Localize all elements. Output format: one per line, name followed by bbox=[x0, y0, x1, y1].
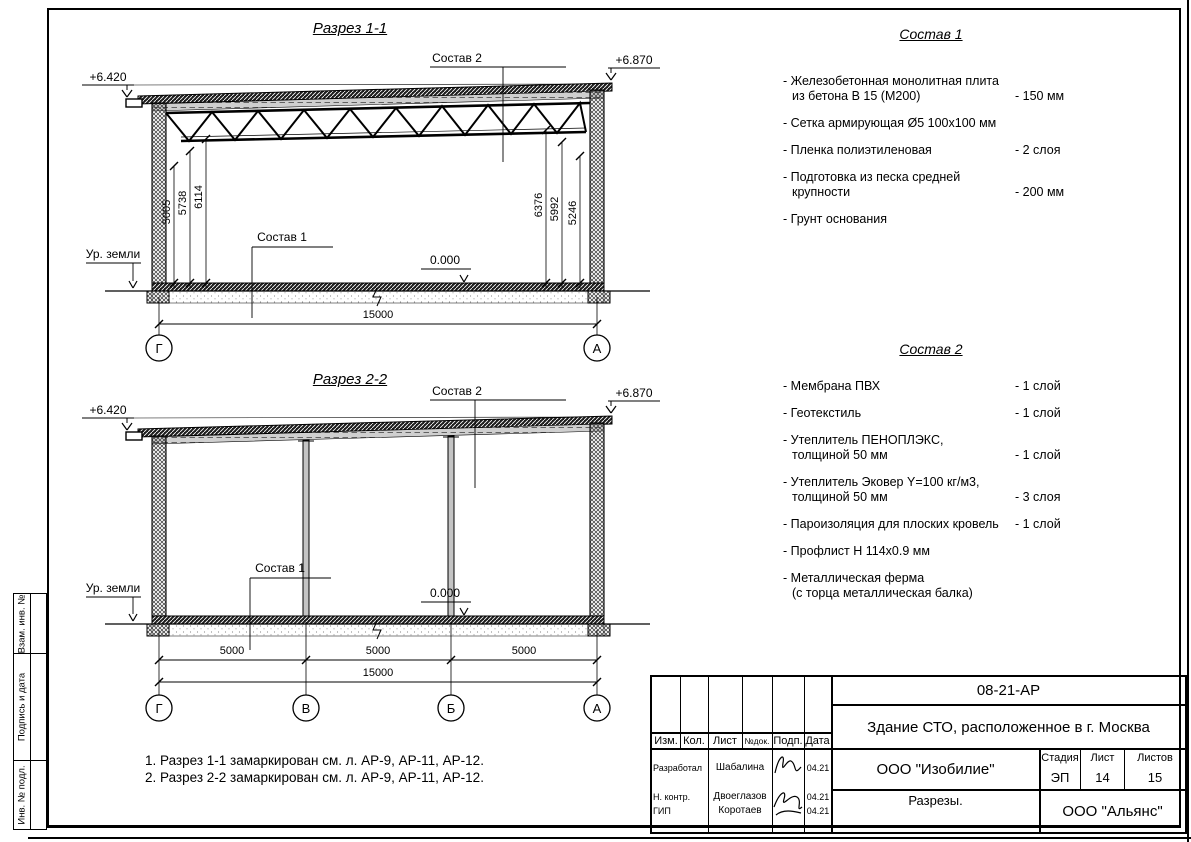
svg-text:Ур. земли: Ур. земли bbox=[86, 247, 140, 261]
dim-label: 5992 bbox=[549, 197, 561, 221]
note-line: 1. Разрез 1-1 замаркирован см. л. АР-9, … bbox=[145, 752, 484, 769]
footing-right bbox=[588, 291, 610, 303]
axis-bubbles: Г А bbox=[146, 335, 610, 361]
wall-left bbox=[152, 436, 166, 616]
list-item: - Металлическая ферма (с торца металличе… bbox=[783, 571, 1079, 601]
svg-text:+6.870: +6.870 bbox=[615, 386, 652, 400]
svg-text:Состав 1: Состав 1 bbox=[257, 230, 307, 244]
elevation-mark-right: +6.870 bbox=[606, 386, 660, 413]
sostav1-header: Состав 1 bbox=[783, 26, 1079, 50]
list-item: - Мембрана ПВХ - 1 слой bbox=[783, 379, 1079, 394]
section-1-1-drawing: 5005 5738 6114 6376 5992 5246 +6.420 +6.… bbox=[82, 51, 660, 361]
rev-col-kol: Кол. bbox=[680, 733, 708, 748]
signature-strokes bbox=[771, 751, 805, 823]
sheets-label: Листов bbox=[1125, 750, 1185, 765]
rev-col-data: Дата bbox=[804, 733, 831, 748]
ground-level-label: Ур. земли bbox=[86, 581, 141, 621]
callout-sostav1: Состав 1 bbox=[250, 561, 331, 650]
dim-label: 6376 bbox=[533, 193, 545, 217]
dim-label: 5246 bbox=[567, 201, 579, 225]
axis-letter: Г bbox=[155, 701, 162, 716]
rev-col-podp: Подп. bbox=[772, 733, 804, 748]
signatory-name: Двоеглазов bbox=[709, 790, 771, 803]
dims-left bbox=[170, 135, 210, 288]
dim-label: 5738 bbox=[177, 191, 189, 215]
sheet-label: Лист bbox=[1081, 750, 1124, 765]
svg-text:+6.420: +6.420 bbox=[89, 70, 126, 84]
dim-label: 5000 bbox=[512, 645, 536, 657]
sostav1-list: - Железобетонная монолитная плита из бет… bbox=[783, 74, 1079, 239]
project-title: Здание СТО, расположенное в г. Москва bbox=[832, 706, 1185, 748]
sostav2-title: Состав 2 bbox=[783, 341, 1079, 357]
zero-level-mark: 0.000 bbox=[421, 253, 471, 282]
ground-level-label: Ур. земли bbox=[86, 247, 141, 288]
list-item: - Утеплитель Эковер Y=100 кг/м3, толщино… bbox=[783, 475, 1079, 505]
section-2-2-drawing: +6.420 +6.870 Ур. земли Состав 2 bbox=[82, 384, 660, 721]
svg-text:15000: 15000 bbox=[363, 309, 394, 321]
sostav2-header: Состав 2 bbox=[783, 341, 1079, 365]
dim-label: 5000 bbox=[366, 645, 390, 657]
dim-label: 5005 bbox=[161, 200, 173, 224]
wall-right bbox=[590, 423, 604, 616]
parapet-flashing bbox=[126, 432, 142, 440]
axis-letter: Г bbox=[155, 341, 162, 356]
svg-text:0.000: 0.000 bbox=[430, 586, 460, 600]
rev-col-izm: Изм. bbox=[652, 733, 680, 748]
axis-letter: Б bbox=[447, 701, 456, 716]
elevation-mark-left: +6.420 bbox=[82, 403, 134, 430]
sostav1-title: Состав 1 bbox=[783, 26, 1079, 42]
strip-cell: Инв. № подл. bbox=[13, 760, 47, 830]
signatory-role: ГИП bbox=[653, 804, 707, 817]
footing-right bbox=[588, 624, 610, 636]
list-item: - Грунт основания bbox=[783, 212, 1079, 227]
floor-slab bbox=[152, 283, 604, 291]
strip-cell: Взам. инв. № bbox=[13, 593, 47, 653]
drawing-sheet: Разрез 1-1 Разрез 2-2 bbox=[0, 0, 1191, 842]
sheet-value: 14 bbox=[1081, 766, 1124, 789]
callout-sostav1: Состав 1 bbox=[252, 230, 333, 318]
designer-org: ООО "Изобилие" bbox=[832, 750, 1039, 789]
list-item: - Сетка армирующая Ø5 100x100 мм bbox=[783, 116, 1079, 131]
list-item: - Профлист Н 114x0.9 мм bbox=[783, 544, 1079, 559]
elevation-mark-left: +6.420 bbox=[82, 70, 134, 97]
wall-left bbox=[152, 103, 166, 283]
svg-text:Состав 1: Состав 1 bbox=[255, 561, 305, 575]
list-item: - Пароизоляция для плоских кровель - 1 с… bbox=[783, 517, 1079, 532]
axis-bubbles: Г В Б А bbox=[146, 695, 610, 721]
stage-label: Стадия bbox=[1040, 750, 1080, 765]
client-org: ООО "Альянс" bbox=[1040, 791, 1185, 832]
signatory-role: Разработал bbox=[653, 760, 707, 775]
signatory-date: 04.21 bbox=[805, 804, 831, 817]
dim-label: 15000 bbox=[363, 667, 394, 679]
signatory-date: 04.21 bbox=[805, 760, 831, 775]
axis-letter: А bbox=[593, 341, 602, 356]
list-item: - Железобетонная монолитная плита из бет… bbox=[783, 74, 1079, 104]
axis-letter: А bbox=[593, 701, 602, 716]
signatory-name: Коротаев bbox=[709, 804, 771, 817]
parapet-flashing bbox=[126, 99, 142, 107]
list-item: - Пленка полиэтиленовая - 2 слоя bbox=[783, 143, 1079, 158]
rev-col-list: Лист bbox=[708, 733, 742, 748]
svg-text:Состав 2: Состав 2 bbox=[432, 51, 482, 65]
dim-label: 5000 bbox=[220, 645, 244, 657]
svg-text:0.000: 0.000 bbox=[430, 253, 460, 267]
axis-letter: В bbox=[302, 701, 311, 716]
wall-right bbox=[590, 90, 604, 283]
svg-text:+6.420: +6.420 bbox=[89, 403, 126, 417]
list-item: - Подготовка из песка средней крупности … bbox=[783, 170, 1079, 200]
sheets-value: 15 bbox=[1125, 766, 1185, 789]
elevation-mark-right: +6.870 bbox=[606, 53, 660, 80]
sheet-name: Разрезы. bbox=[832, 791, 1039, 809]
list-item: - Утеплитель ПЕНОПЛЭКС, толщиной 50 мм -… bbox=[783, 433, 1079, 463]
dim-label: 6114 bbox=[193, 185, 205, 209]
footing-left bbox=[147, 291, 169, 303]
svg-text:Состав 2: Состав 2 bbox=[432, 384, 482, 398]
svg-text:+6.870: +6.870 bbox=[615, 53, 652, 67]
strip-cell: Подпись и дата bbox=[13, 653, 47, 760]
floor-slab bbox=[152, 616, 604, 624]
note-line: 2. Разрез 2-2 замаркирован см. л. АР-9, … bbox=[145, 769, 484, 786]
frame-left-strip: Взам. инв. № Подпись и дата Инв. № подл. bbox=[13, 593, 47, 830]
list-item: - Геотекстиль - 1 слой bbox=[783, 406, 1079, 421]
strip-label: Взам. инв. № bbox=[17, 594, 28, 653]
title-block: Изм. Кол. Лист №док. Подп. Дата Разработ… bbox=[650, 675, 1187, 834]
rev-col-ndok: №док. bbox=[742, 733, 772, 748]
sostav2-list: - Мембрана ПВХ - 1 слой - Геотекстиль - … bbox=[783, 379, 1079, 613]
strip-label: Подпись и дата bbox=[17, 673, 28, 741]
notes: 1. Разрез 1-1 замаркирован см. л. АР-9, … bbox=[145, 752, 484, 786]
column-V bbox=[303, 440, 309, 616]
svg-text:Ур. земли: Ур. земли bbox=[86, 581, 140, 595]
footing-left bbox=[147, 624, 169, 636]
strip-label: Инв. № подл. bbox=[17, 765, 28, 824]
signatory-name: Шабалина bbox=[709, 760, 771, 775]
doc-number: 08-21-АР bbox=[832, 677, 1185, 704]
stage-value: ЭП bbox=[1040, 766, 1080, 789]
zero-level-mark: 0.000 bbox=[421, 586, 471, 615]
signatory-date: 04.21 bbox=[805, 790, 831, 803]
signatory-role: Н. контр. bbox=[653, 790, 707, 803]
